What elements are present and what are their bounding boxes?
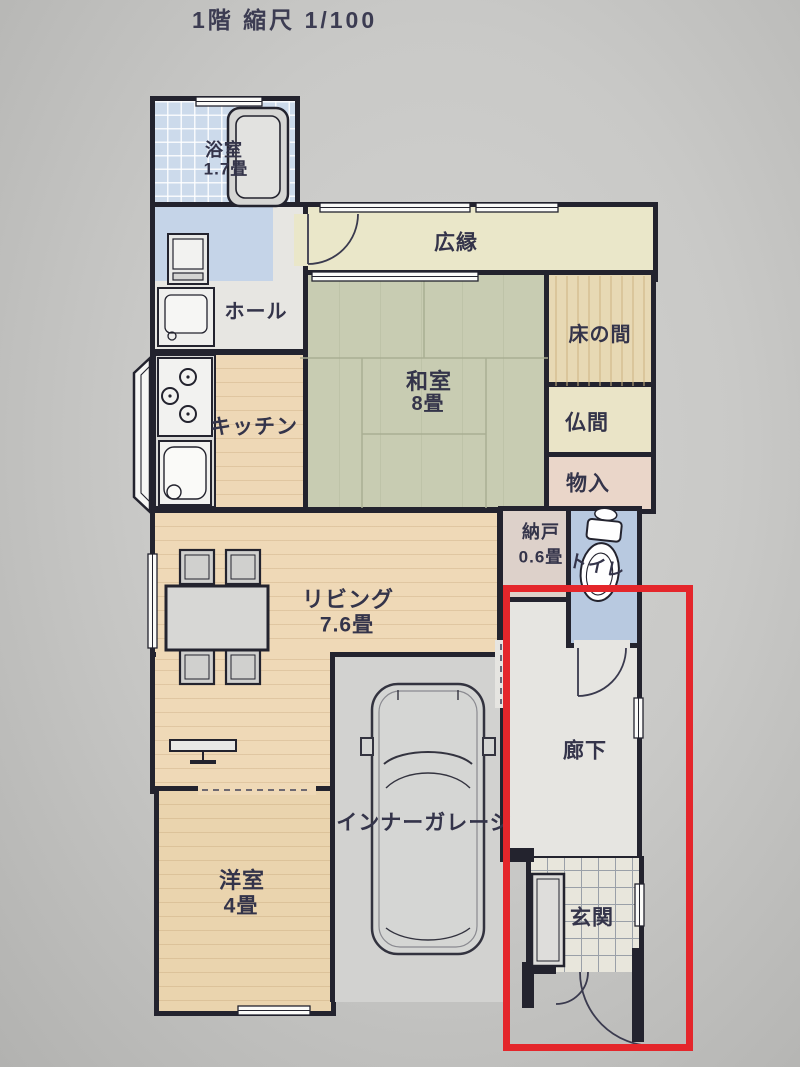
label-butsuma: 仏間 bbox=[565, 413, 609, 434]
label-nando-name: 納戸 bbox=[522, 523, 560, 541]
label-living-name: リビング bbox=[302, 589, 394, 611]
label-youshitsu-name: 洋室 bbox=[219, 870, 265, 892]
label-youshitsu-size: 4畳 bbox=[224, 896, 259, 917]
label-washitsu-name: 和室 bbox=[406, 371, 452, 393]
label-hall: ホール bbox=[225, 302, 288, 322]
label-bath-size: 1.7畳 bbox=[204, 161, 249, 178]
label-washitsu-size: 8畳 bbox=[411, 394, 444, 414]
label-kitchen: キッチン bbox=[210, 417, 298, 438]
living-l-join bbox=[156, 646, 332, 662]
label-garage: インナーガレージ bbox=[336, 813, 512, 834]
bay-window-icon bbox=[134, 358, 150, 512]
label-monoire: 物入 bbox=[566, 474, 610, 495]
highlight-box bbox=[503, 585, 693, 1051]
label-veranda: 広縁 bbox=[434, 233, 478, 254]
label-tokonoma: 床の間 bbox=[569, 325, 632, 345]
room-living-upper bbox=[150, 508, 502, 660]
room-living-lower bbox=[150, 652, 336, 794]
label-bath-name: 浴室 bbox=[205, 141, 243, 159]
plan-title: 1階 縮尺 1/100 bbox=[192, 9, 377, 32]
floor-plan-photo: 1階 縮尺 1/100 浴室 1.7畳 ホール キッチン 広縁 和室 8畳 床の… bbox=[0, 0, 800, 1067]
label-living-size: 7.6畳 bbox=[320, 615, 374, 636]
room-washroom bbox=[155, 207, 273, 281]
label-nando-size: 0.6畳 bbox=[519, 549, 564, 566]
